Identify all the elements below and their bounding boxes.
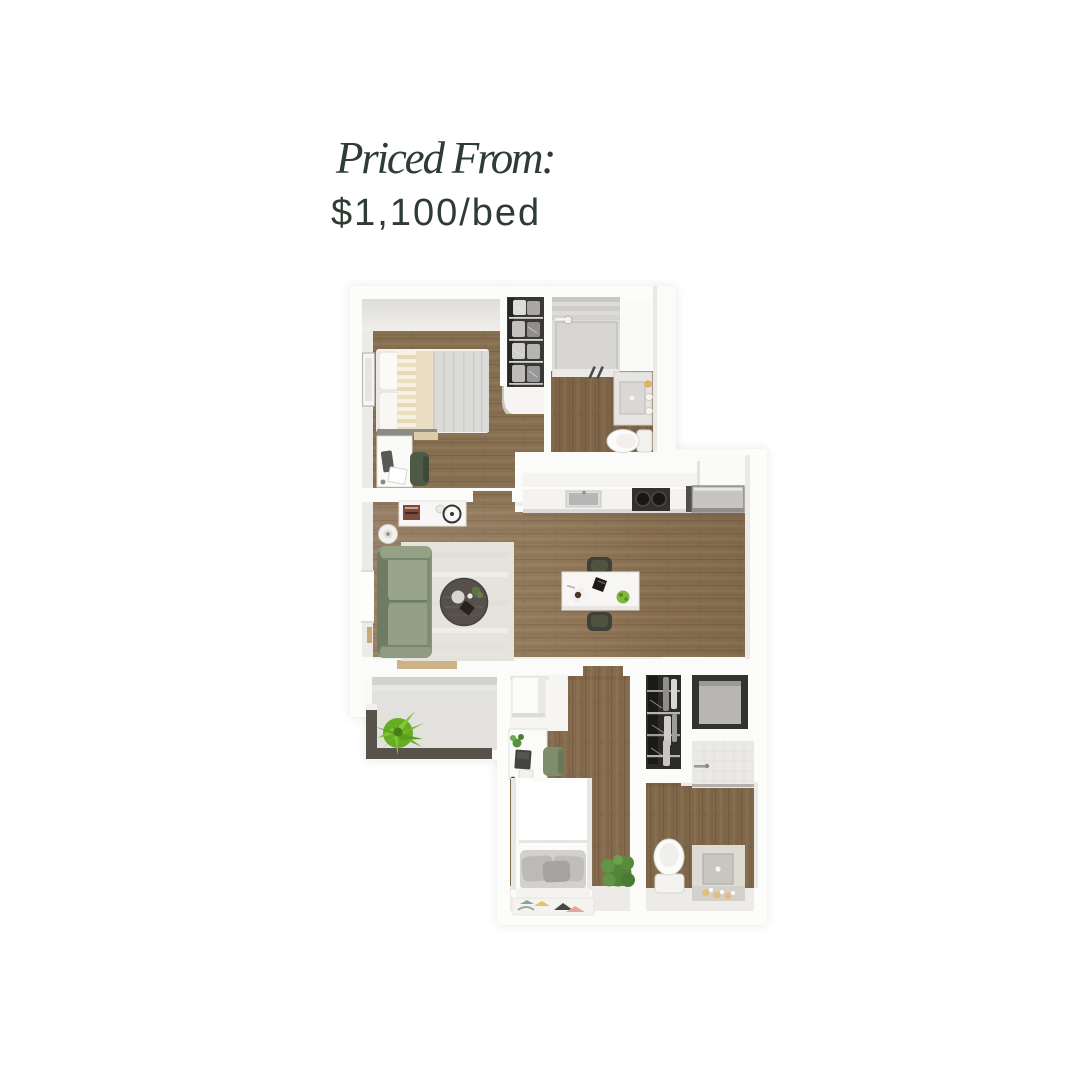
svg-text:Priced From:: Priced From: [335, 133, 554, 183]
svg-text:$1,100/bed: $1,100/bed [331, 192, 541, 234]
